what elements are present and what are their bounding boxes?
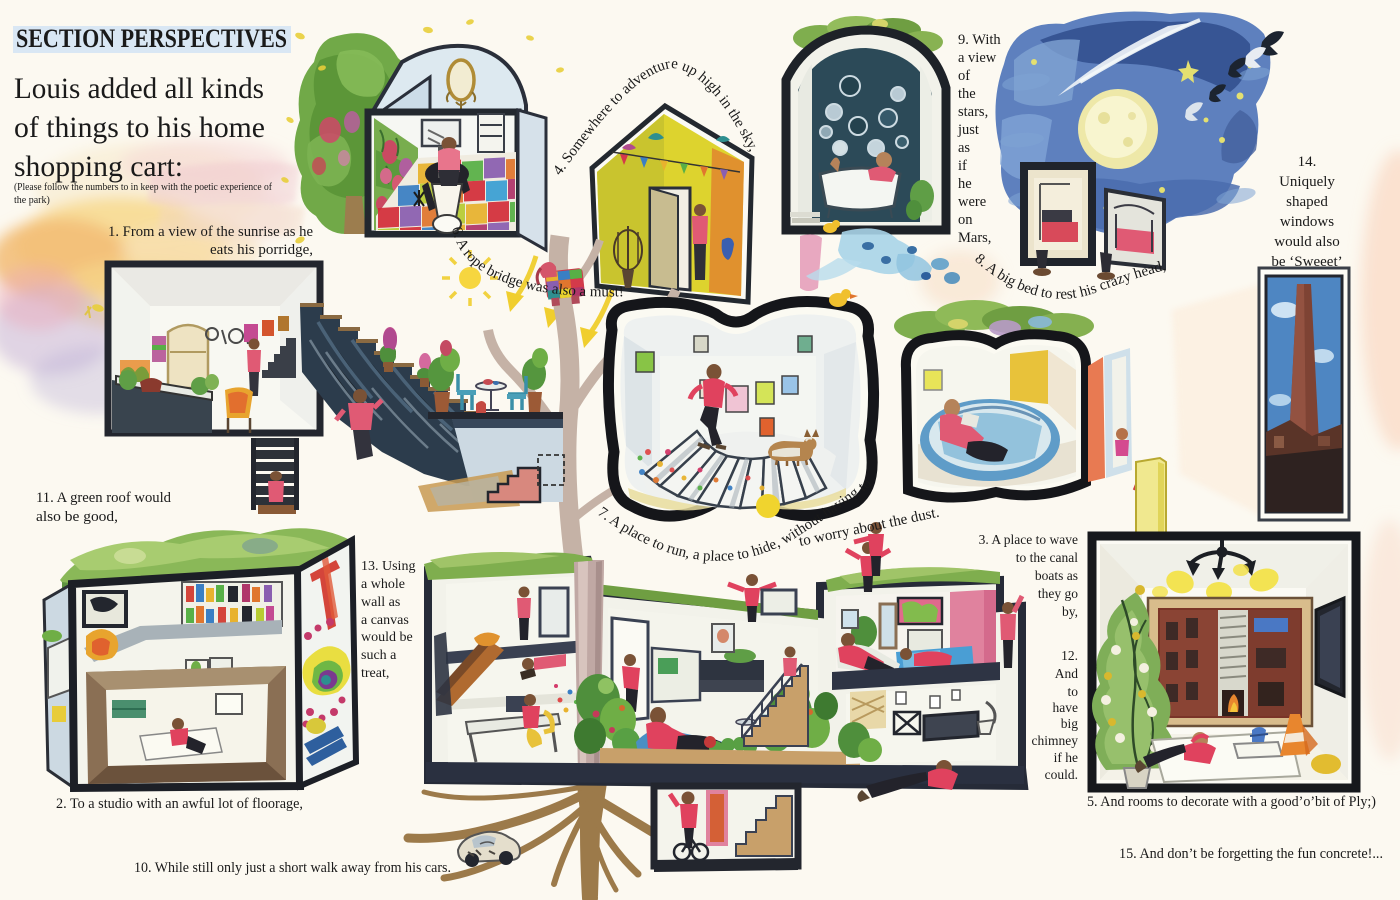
svg-text:11. A green roof would: 11. A green roof would xyxy=(36,490,171,506)
svg-text:stars,: stars, xyxy=(958,104,988,120)
svg-text:windows: windows xyxy=(1280,214,1334,230)
svg-text:Mars,: Mars, xyxy=(958,230,991,246)
svg-text:Louis added all kinds: Louis added all kinds xyxy=(14,72,264,105)
svg-text:14.: 14. xyxy=(1298,154,1317,170)
svg-text:just: just xyxy=(957,122,979,138)
svg-text:Uniquely: Uniquely xyxy=(1279,174,1335,190)
svg-text:be ‘Sweeet’: be ‘Sweeet’ xyxy=(1271,254,1342,270)
svg-text:on: on xyxy=(958,212,973,228)
svg-text:the: the xyxy=(958,86,976,102)
svg-text:also be good,: also be good, xyxy=(36,509,118,525)
svg-text:boats as: boats as xyxy=(1035,568,1078,583)
svg-text:to the canal: to the canal xyxy=(1016,550,1078,565)
svg-text:big: big xyxy=(1061,716,1079,731)
svg-text:(Please follow the numbers to: (Please follow the numbers to in keep wi… xyxy=(14,182,273,193)
svg-text:10. While still only just a sh: 10. While still only just a short walk a… xyxy=(134,860,451,876)
svg-text:were: were xyxy=(958,194,986,210)
svg-text:12.: 12. xyxy=(1061,648,1078,663)
svg-text:SECTION PERSPECTIVES: SECTION PERSPECTIVES xyxy=(16,24,287,53)
svg-text:a view: a view xyxy=(958,50,997,66)
svg-text:a canvas: a canvas xyxy=(361,613,409,628)
svg-text:they go: they go xyxy=(1038,586,1078,601)
svg-text:eats his porridge,: eats his porridge, xyxy=(210,242,313,258)
svg-text:a whole: a whole xyxy=(361,577,405,592)
svg-text:have: have xyxy=(1053,700,1078,715)
svg-text:shopping cart:: shopping cart: xyxy=(14,150,183,183)
svg-text:to: to xyxy=(1067,684,1078,699)
svg-text:would also: would also xyxy=(1274,234,1339,250)
svg-text:5. And rooms to decorate with: 5. And rooms to decorate with a good’o’b… xyxy=(1087,794,1376,810)
svg-text:13. Using: 13. Using xyxy=(361,559,415,574)
svg-text:the park): the park) xyxy=(14,195,50,206)
svg-text:chimney: chimney xyxy=(1032,733,1079,748)
svg-text:shaped: shaped xyxy=(1286,194,1328,210)
svg-text:could.: could. xyxy=(1045,767,1078,782)
svg-text:treat,: treat, xyxy=(361,666,389,681)
svg-text:3. A place to wave: 3. A place to wave xyxy=(979,532,1078,547)
svg-text:of: of xyxy=(958,68,970,84)
svg-text:And: And xyxy=(1055,666,1078,681)
svg-text:if he: if he xyxy=(1054,750,1078,765)
svg-text:15. And don’t be forgetting th: 15. And don’t be forgetting the fun conc… xyxy=(1119,846,1383,862)
svg-text:1. From a view of the sunrise: 1. From a view of the sunrise as he xyxy=(108,224,313,240)
svg-text:9. With: 9. With xyxy=(958,32,1001,48)
svg-text:would be: would be xyxy=(361,630,413,645)
svg-text:as: as xyxy=(958,140,970,156)
svg-text:if: if xyxy=(958,158,967,174)
svg-text:he: he xyxy=(958,176,972,192)
svg-text:2. To a studio with an awful l: 2. To a studio with an awful lot of floo… xyxy=(56,796,303,812)
svg-text:of things to his home: of things to his home xyxy=(14,111,265,144)
svg-text:such a: such a xyxy=(361,648,397,663)
svg-text:by,: by, xyxy=(1062,604,1078,619)
svg-text:wall as: wall as xyxy=(361,595,400,610)
